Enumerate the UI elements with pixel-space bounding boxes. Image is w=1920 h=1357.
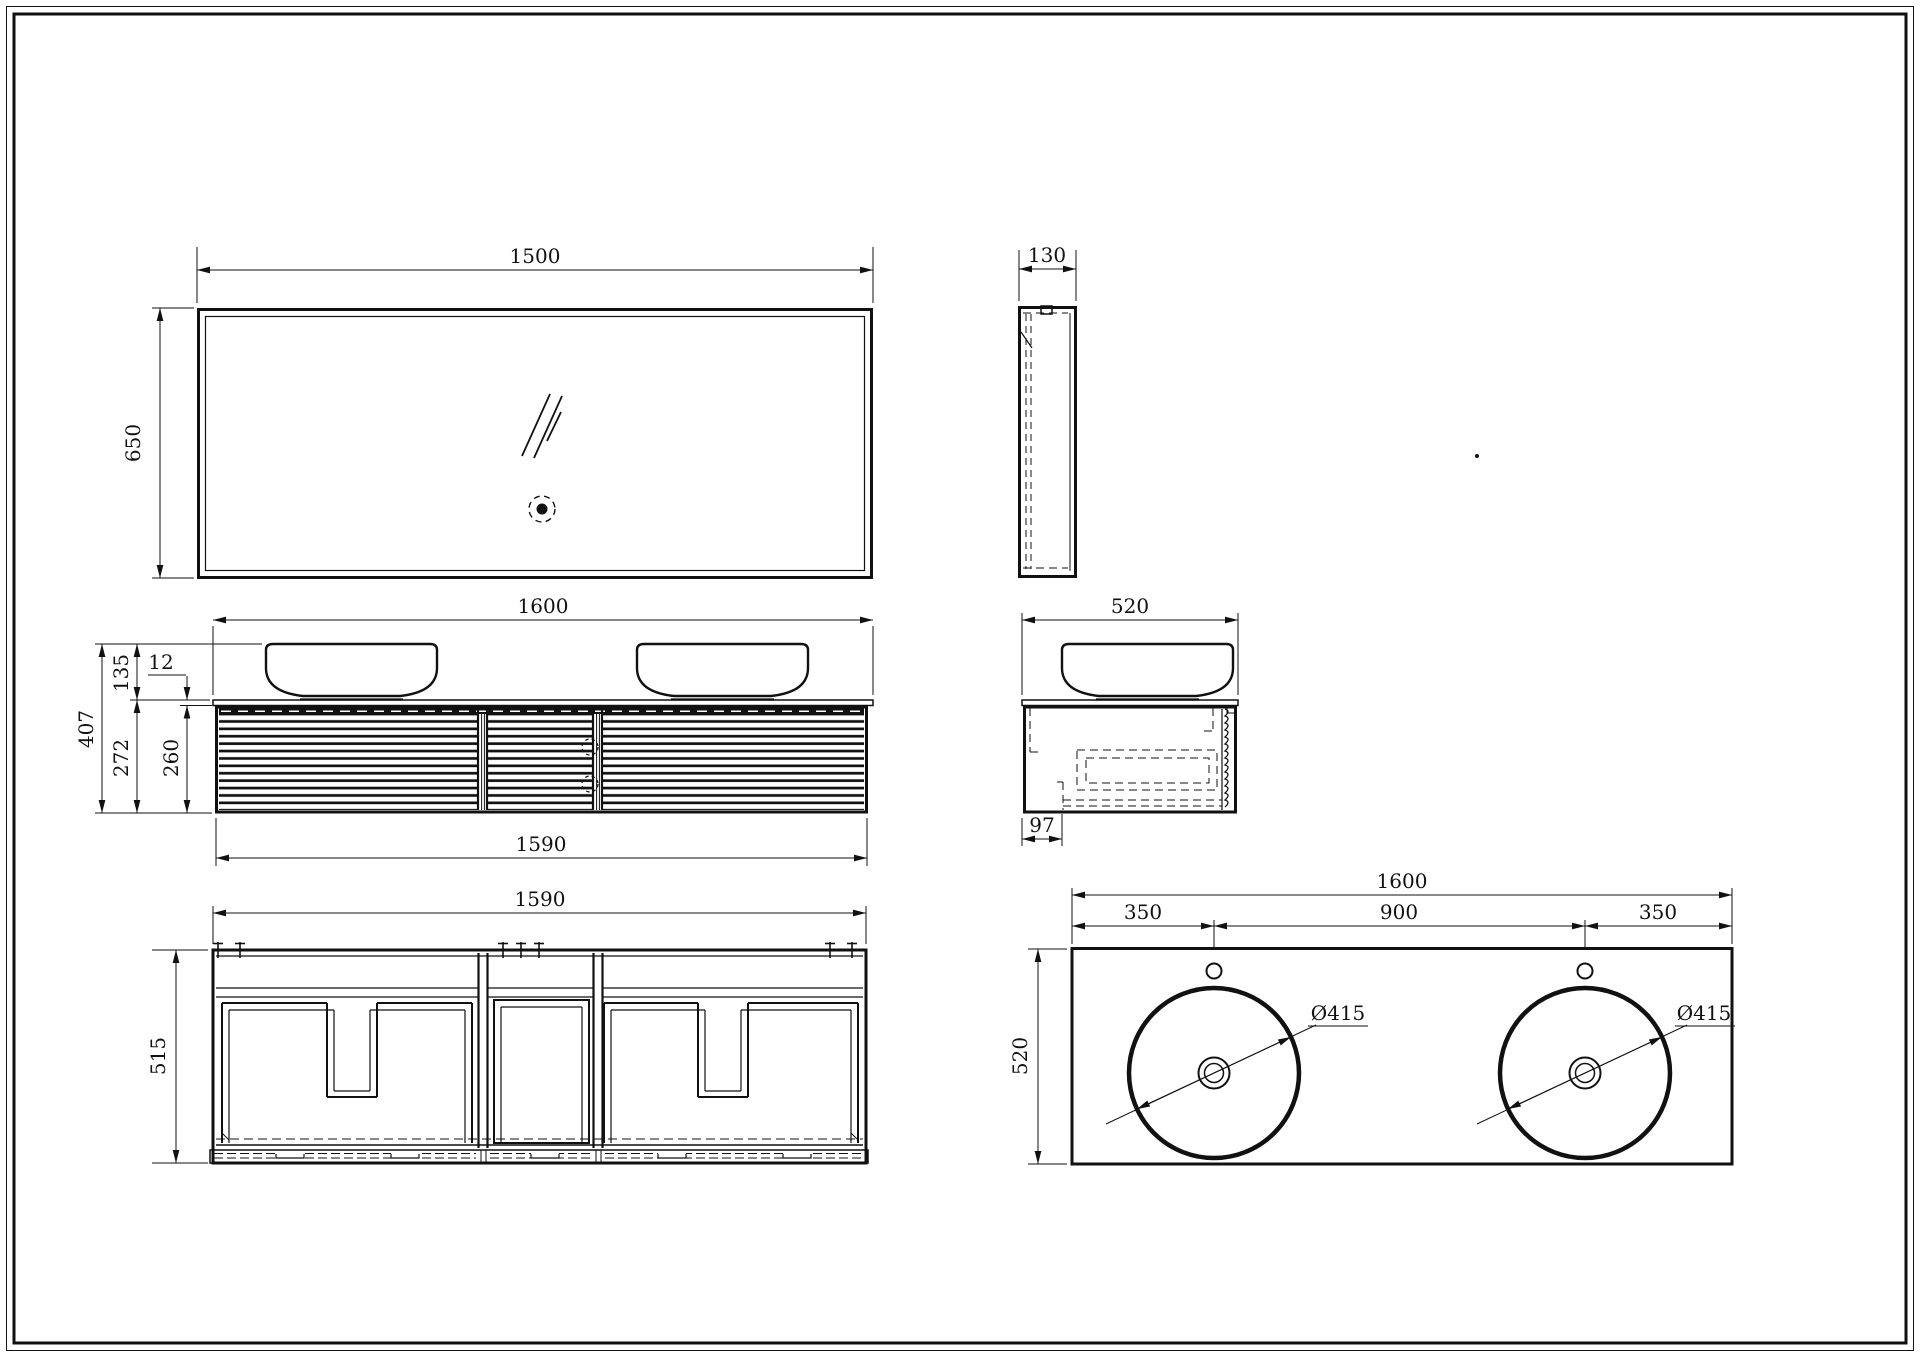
dim-plan-spacing: 350 900 350 [1072, 900, 1732, 947]
fluted-panel-right [602, 714, 864, 810]
carcass-front-view: 1590 515 [146, 887, 868, 1163]
technical-drawing-canvas: 1500 650 130 [0, 0, 1920, 1357]
dim-label-plan-width: 1600 [1377, 869, 1428, 893]
dim-carcass-height: 515 [146, 950, 208, 1163]
faucet-hole-right [1578, 964, 1593, 979]
dim-label-basin-diameter-right: Ø415 [1677, 1001, 1732, 1025]
touch-sensor-icon [529, 496, 555, 522]
dim-side-offset: 97 [1022, 813, 1062, 846]
dim-label-side-offset: 97 [1029, 813, 1054, 837]
carcass-dividers [479, 953, 603, 1148]
basin-right-front [637, 644, 808, 700]
dim-label-vanity-width-bottom: 1590 [516, 832, 567, 856]
dim-label-mirror-depth: 130 [1028, 243, 1066, 267]
faucet-hole-left [1207, 964, 1222, 979]
dim-label-drawer-front-height: 260 [159, 739, 183, 777]
dim-label-carcass-width: 1590 [515, 887, 566, 911]
dim-label-mirror-height: 650 [121, 424, 145, 462]
dim-plan-depth: 520 [1008, 949, 1067, 1164]
dim-label-total-height: 407 [74, 710, 98, 748]
dim-label-plan-depth: 520 [1008, 1037, 1032, 1075]
dim-label-right-offset: 350 [1639, 900, 1677, 924]
dim-label-side-depth: 520 [1111, 594, 1149, 618]
hidden-lines [1030, 708, 1222, 810]
drawer-box-left [222, 1003, 472, 1143]
dim-label-cabinet-height: 272 [109, 739, 133, 777]
drawer-box-right [604, 1003, 858, 1143]
dim-basin-diameter-right: Ø415 [1477, 1001, 1735, 1124]
dim-label-basin-height: 135 [109, 654, 133, 692]
dim-vanity-width-bottom: 1590 [216, 818, 867, 866]
drawing-sheet: 1500 650 130 [0, 0, 1920, 1357]
fluted-panel-middle [487, 714, 593, 810]
glass-mark [522, 394, 562, 458]
dim-label-basin-diameter-left: Ø415 [1311, 1001, 1366, 1025]
flute-profile [1225, 709, 1228, 807]
mirror-side-view: 130 [1019, 243, 1076, 577]
fluted-panel-left [219, 714, 478, 810]
dim-mirror-height: 650 [121, 308, 194, 578]
dim-mirror-depth: 130 [1019, 243, 1076, 301]
hanging-rail [216, 988, 863, 997]
basin-side [1062, 644, 1233, 700]
ink-speck [1475, 454, 1479, 458]
dim-label-vanity-width-top: 1600 [518, 594, 569, 618]
vanity-front-view: 1600 1590 407 135 272 12 [74, 594, 873, 866]
countertop-plan-view: Ø415 Ø415 1600 350 900 350 [1008, 869, 1735, 1164]
dim-label-left-offset: 350 [1124, 900, 1162, 924]
dim-label-carcass-height: 515 [146, 1037, 170, 1075]
dim-label-mirror-width: 1500 [510, 244, 561, 268]
dim-carcass-width: 1590 [213, 887, 866, 944]
dim-label-counter-thickness: 12 [148, 650, 173, 674]
mirror-front-view: 1500 650 [121, 244, 873, 578]
dim-mirror-width: 1500 [197, 244, 873, 303]
dim-label-center-spacing: 900 [1380, 900, 1418, 924]
vanity-side-view: 520 97 [1022, 594, 1238, 846]
middle-box [494, 1000, 589, 1143]
basin-left-front [266, 644, 437, 700]
